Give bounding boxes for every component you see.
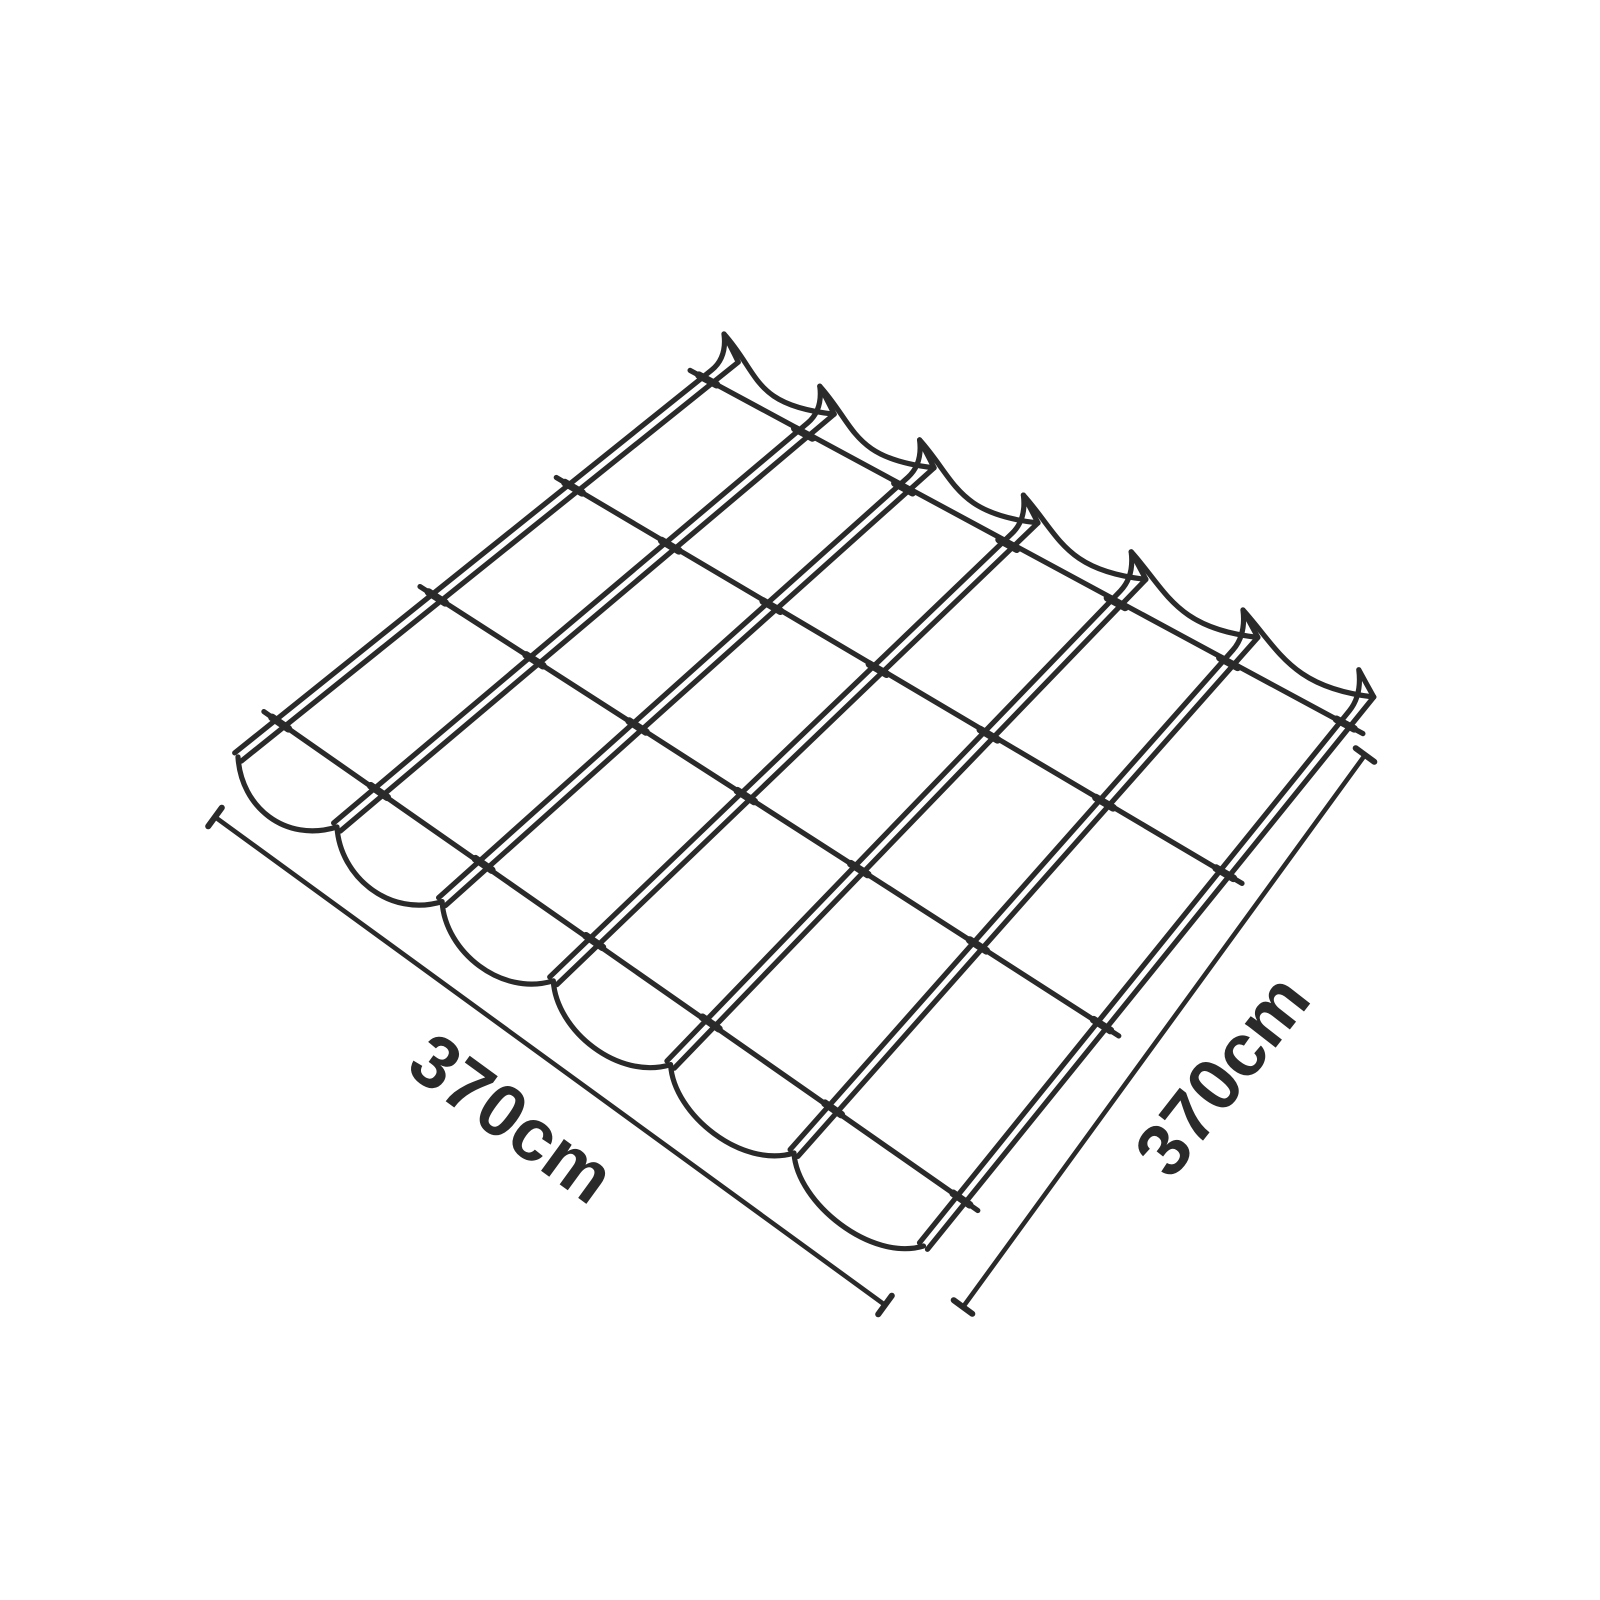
dimension-line-left bbox=[215, 817, 885, 1305]
dimension-label-right: 370cm bbox=[1118, 959, 1325, 1192]
pergola-canopy-diagram: 370cm 370cm bbox=[0, 0, 1600, 1600]
scallop-fabric-edges bbox=[724, 334, 1374, 697]
dimension-right: 370cm bbox=[954, 748, 1375, 1314]
diagram-canvas: 370cm 370cm bbox=[0, 0, 1600, 1600]
dimension-left: 370cm bbox=[208, 808, 892, 1315]
